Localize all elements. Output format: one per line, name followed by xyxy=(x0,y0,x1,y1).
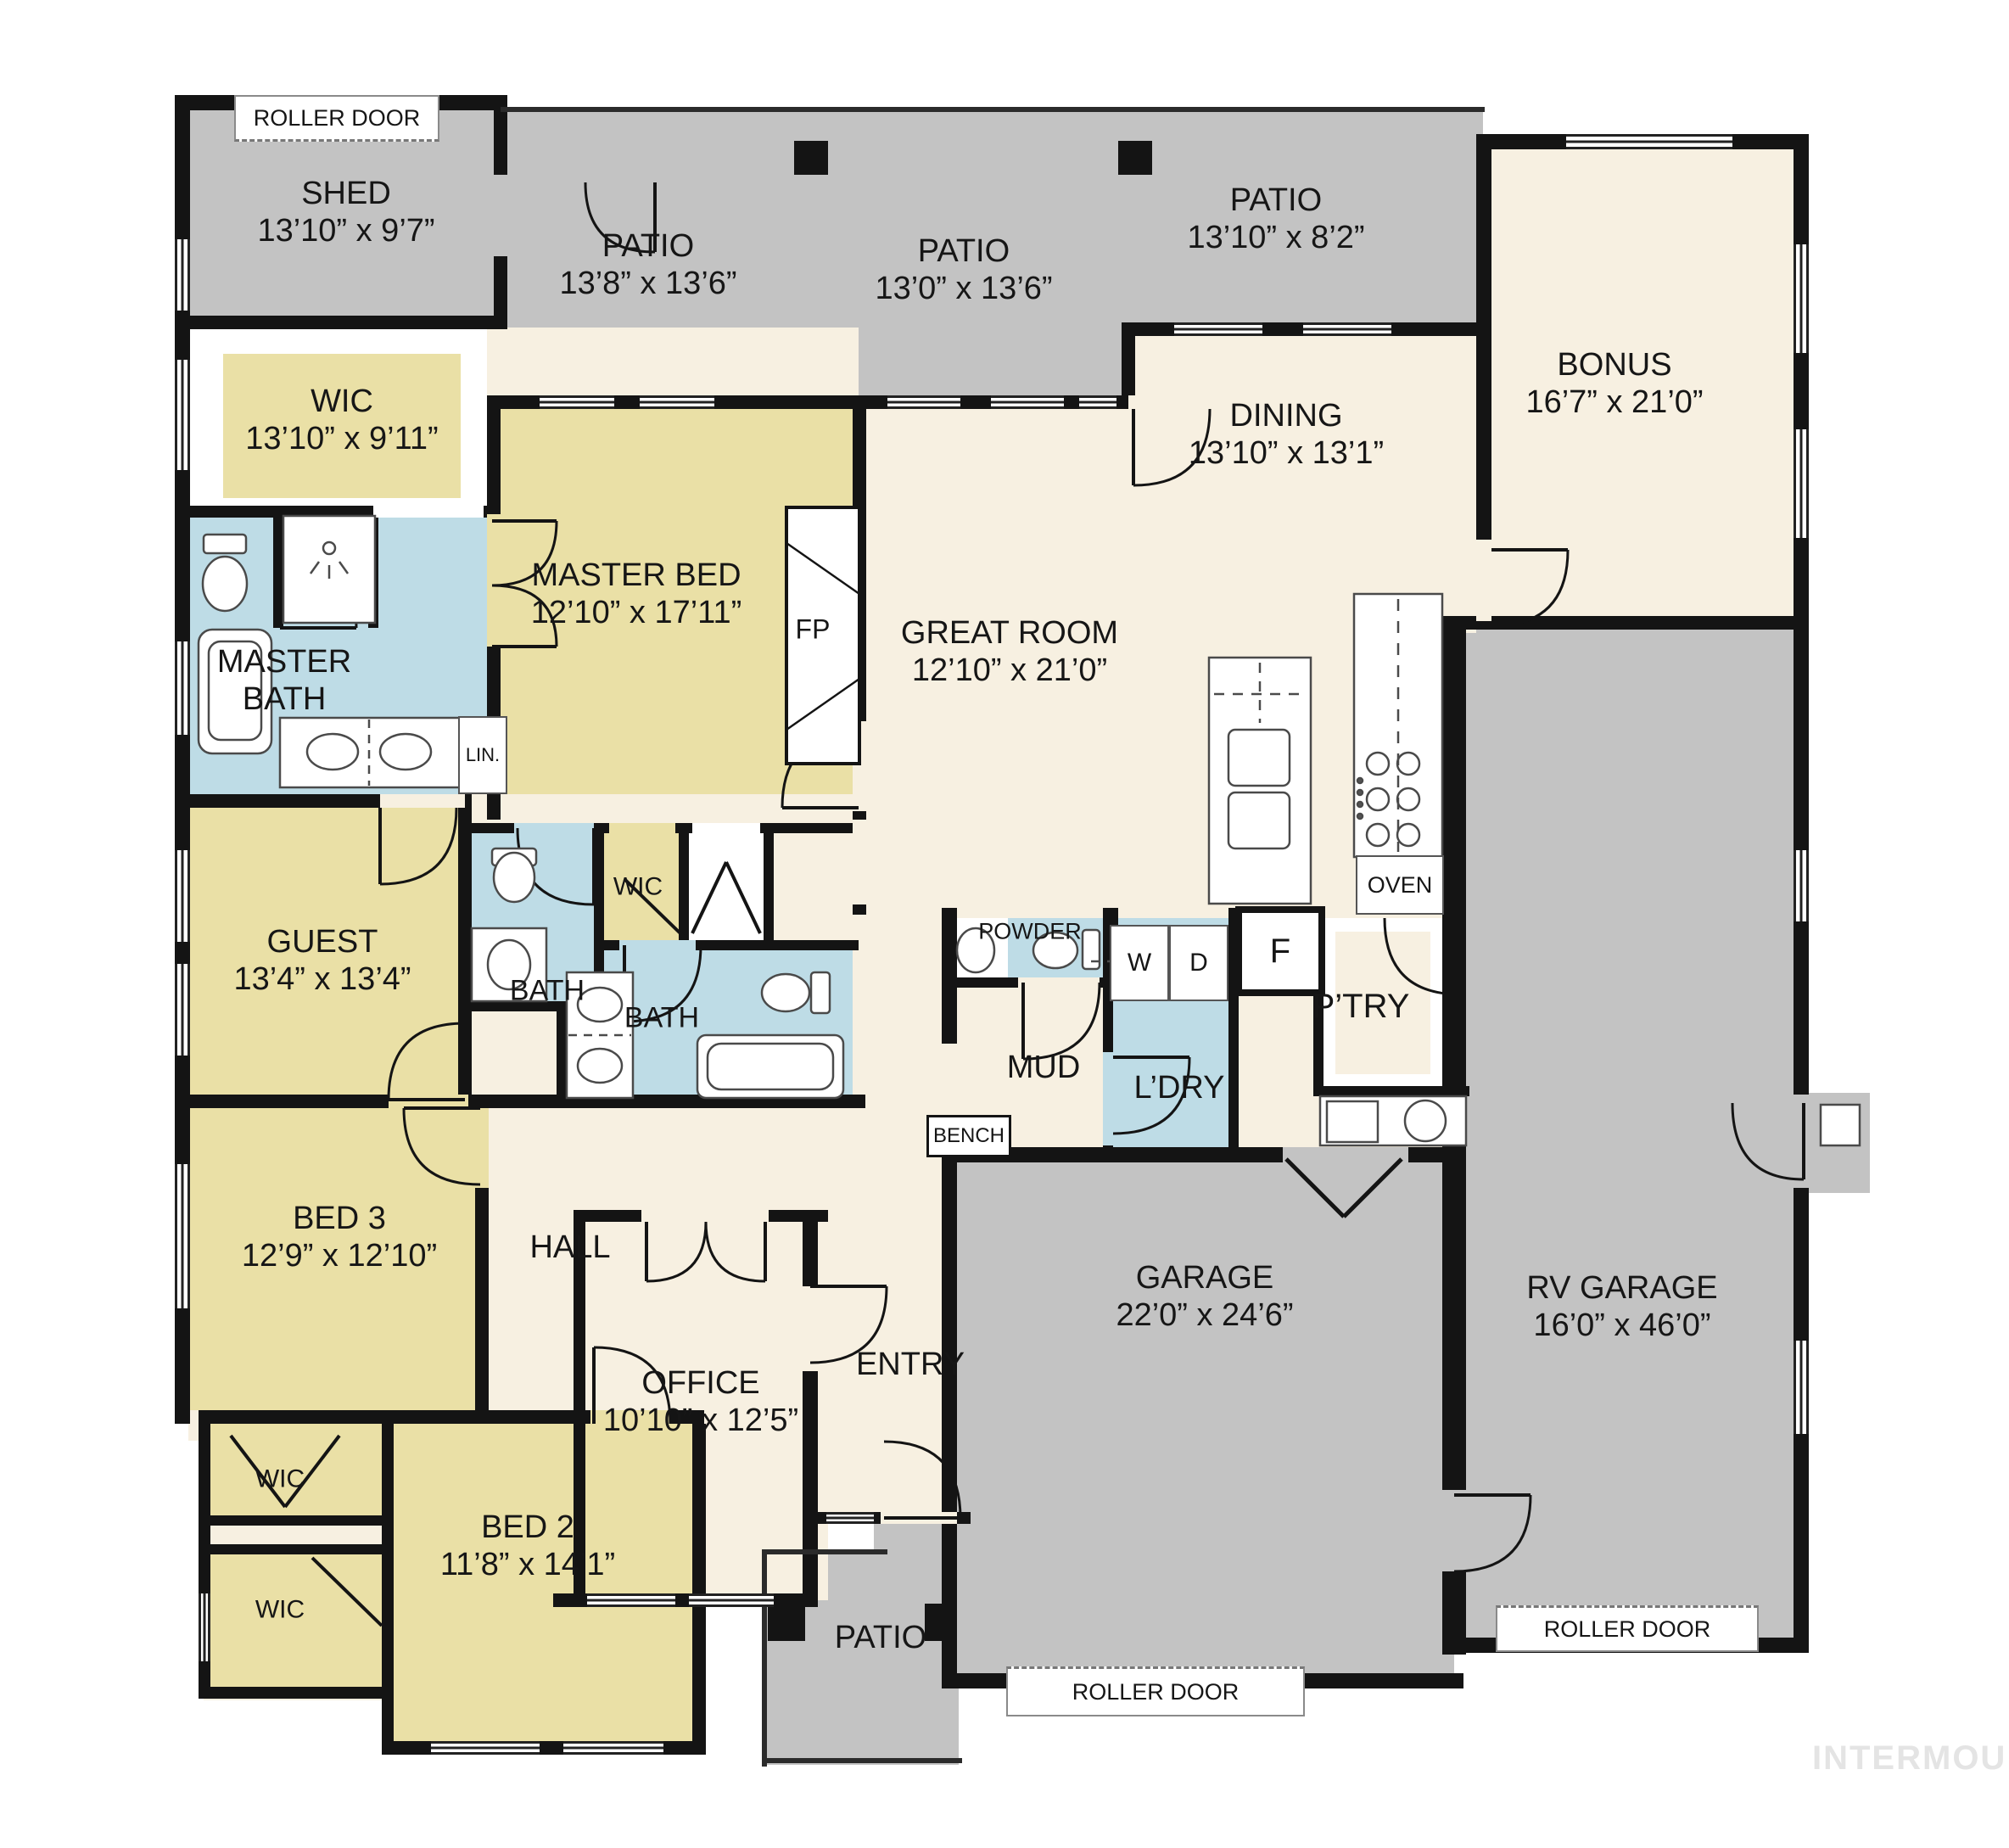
window xyxy=(1303,322,1391,336)
room-label-hall-wic: WIC xyxy=(613,873,663,903)
roller-door-label: ROLLER DOOR xyxy=(1072,1679,1240,1705)
room-label-shed: SHED 13’10” x 9’7” xyxy=(257,175,434,249)
window xyxy=(689,1593,774,1607)
wall xyxy=(692,1424,706,1755)
window xyxy=(1079,395,1116,409)
wall xyxy=(768,1604,805,1641)
room-label-bed2: BED 2 11’8” x 14’1” xyxy=(440,1509,615,1583)
door-opening xyxy=(487,514,501,647)
room-label-laundry: L’DRY xyxy=(1133,1069,1224,1106)
window xyxy=(640,395,714,409)
window xyxy=(1794,1341,1809,1434)
room-label-bed3: BED 3 12’9” x 12’10” xyxy=(242,1200,437,1274)
oven-box: OVEN xyxy=(1356,855,1444,915)
wall xyxy=(199,1544,385,1554)
door-opening xyxy=(1794,1095,1809,1188)
wall xyxy=(764,823,774,940)
room-label-bed2-wic: WIC xyxy=(255,1596,305,1626)
door-opening xyxy=(475,1108,489,1188)
door-opening xyxy=(853,721,866,811)
window xyxy=(1794,850,1809,921)
room-label-guest: GUEST 13’4” x 13’4” xyxy=(233,923,411,998)
room-label-pantry: P’TRY xyxy=(1312,987,1410,1026)
wall xyxy=(803,1210,818,1605)
room-floor-blue xyxy=(567,1001,853,1095)
patio-edge xyxy=(1128,107,1485,112)
linen-label: LIN. xyxy=(466,744,500,766)
wall xyxy=(175,1095,865,1108)
wall xyxy=(382,1424,394,1755)
door-opening xyxy=(641,1210,769,1222)
window xyxy=(175,239,190,311)
room-floor-gray xyxy=(1809,1093,1870,1193)
wall xyxy=(942,908,957,1688)
dryer-label: D xyxy=(1189,949,1208,977)
wall xyxy=(199,1687,394,1699)
fridge-label: F xyxy=(1270,932,1290,971)
door-opening xyxy=(692,823,760,833)
door-opening xyxy=(1103,1052,1113,1145)
room-label-garage: GARAGE 22’0” x 24’6” xyxy=(1116,1259,1293,1334)
door-opening xyxy=(1283,1147,1408,1162)
window xyxy=(1794,244,1809,353)
room-label-office: OFFICE 10’10” x 12’5” xyxy=(603,1364,798,1439)
room-label-patio-nw: PATIO 13’8” x 13’6” xyxy=(559,227,736,302)
window xyxy=(1566,134,1732,149)
window xyxy=(1794,429,1809,538)
room-label-master-bath: MASTER BATH xyxy=(178,643,390,718)
door-opening xyxy=(609,823,675,833)
floor-plan: ROLLER DOOR ROLLER DOOR ROLLER DOOR BENC… xyxy=(0,0,2009,1848)
room-floor-gray xyxy=(1466,630,1794,1641)
wall xyxy=(199,1515,385,1526)
watermark: INTERMOUNTAIN xyxy=(1812,1739,2009,1778)
door-opening xyxy=(389,1095,468,1108)
room-label-patio-n: PATIO 13’0” x 13’6” xyxy=(875,232,1052,307)
door-opening xyxy=(881,1512,957,1524)
wall xyxy=(368,514,378,628)
roller-door-garage: ROLLER DOOR xyxy=(1006,1666,1305,1716)
window xyxy=(175,964,190,1056)
dryer-box: D xyxy=(1169,925,1228,1001)
window xyxy=(587,1593,675,1607)
patio-edge xyxy=(762,1758,962,1763)
wall xyxy=(925,1604,957,1641)
room-label-patio-ne: PATIO 13’10” x 8’2” xyxy=(1187,182,1364,256)
room-label-guest-bath: BATH xyxy=(510,974,585,1007)
door-opening xyxy=(514,823,594,833)
window xyxy=(175,360,190,470)
room-label-master-wic: WIC 13’10” x 9’11” xyxy=(245,383,438,457)
window xyxy=(991,395,1064,409)
room-label-bonus: BONUS 16’7” x 21’0” xyxy=(1525,346,1703,421)
washer-box: W xyxy=(1110,925,1169,1001)
door-opening xyxy=(853,820,866,904)
room-label-powder: POWDER xyxy=(978,918,1082,944)
roller-door-shed: ROLLER DOOR xyxy=(234,95,439,142)
wall xyxy=(557,1001,567,1105)
room-floor-gray xyxy=(957,1156,1454,1678)
roller-door-rv: ROLLER DOOR xyxy=(1496,1605,1759,1652)
window xyxy=(175,850,190,942)
door-opening xyxy=(1018,977,1100,988)
wall xyxy=(458,794,472,1108)
window xyxy=(175,1164,190,1308)
fireplace-label: FP xyxy=(796,613,831,645)
door-opening xyxy=(373,506,484,518)
wall xyxy=(1476,134,1491,338)
fridge-box: F xyxy=(1242,913,1318,989)
window xyxy=(540,395,614,409)
patio-edge xyxy=(762,1549,767,1767)
room-label-bed3-wic: WIC xyxy=(255,1465,305,1495)
door-opening xyxy=(619,940,696,950)
window xyxy=(826,1512,874,1524)
bench-box: BENCH xyxy=(926,1115,1011,1157)
room-label-hall-bath: BATH xyxy=(624,1001,699,1034)
room-floor-white xyxy=(689,833,764,940)
wall xyxy=(1118,141,1152,175)
room-label-front-patio: PATIO xyxy=(835,1619,926,1656)
room-label-mud: MUD xyxy=(1007,1049,1081,1086)
washer-label: W xyxy=(1128,949,1151,977)
room-label-master-bed: MASTER BED 12’10” x 17’11” xyxy=(530,557,742,631)
bench-label: BENCH xyxy=(933,1124,1004,1148)
door-opening xyxy=(1442,1490,1466,1571)
window xyxy=(199,1593,210,1661)
patio-edge xyxy=(501,107,1132,112)
door-opening xyxy=(494,175,507,256)
roller-door-label: ROLLER DOOR xyxy=(254,105,421,132)
door-opening xyxy=(380,794,465,808)
window xyxy=(431,1741,540,1755)
room-label-great-room: GREAT ROOM 12’10” x 21’0” xyxy=(901,614,1118,689)
room-label-hall: HALL xyxy=(529,1229,610,1266)
oven-label: OVEN xyxy=(1368,872,1433,899)
wall xyxy=(1442,616,1809,630)
door-opening xyxy=(803,1286,818,1371)
room-label-dining: DINING 13’10” x 13’1” xyxy=(1189,397,1384,472)
window xyxy=(1174,322,1262,336)
room-label-entry: ENTRY xyxy=(856,1346,965,1383)
room-floor-white xyxy=(199,1700,382,1765)
room-label-rv-garage: RV GARAGE 16’0” x 46’0” xyxy=(1526,1269,1717,1344)
wall xyxy=(594,823,604,1001)
window xyxy=(563,1741,663,1755)
roller-door-label: ROLLER DOOR xyxy=(1544,1616,1711,1643)
wall xyxy=(1313,1086,1469,1096)
door-opening xyxy=(1476,540,1491,621)
wall xyxy=(273,514,283,628)
linen-closet: LIN. xyxy=(458,716,507,794)
wall xyxy=(794,141,828,175)
wall xyxy=(679,823,689,940)
wall xyxy=(175,316,507,329)
window xyxy=(887,395,960,409)
patio-edge xyxy=(762,1549,887,1554)
